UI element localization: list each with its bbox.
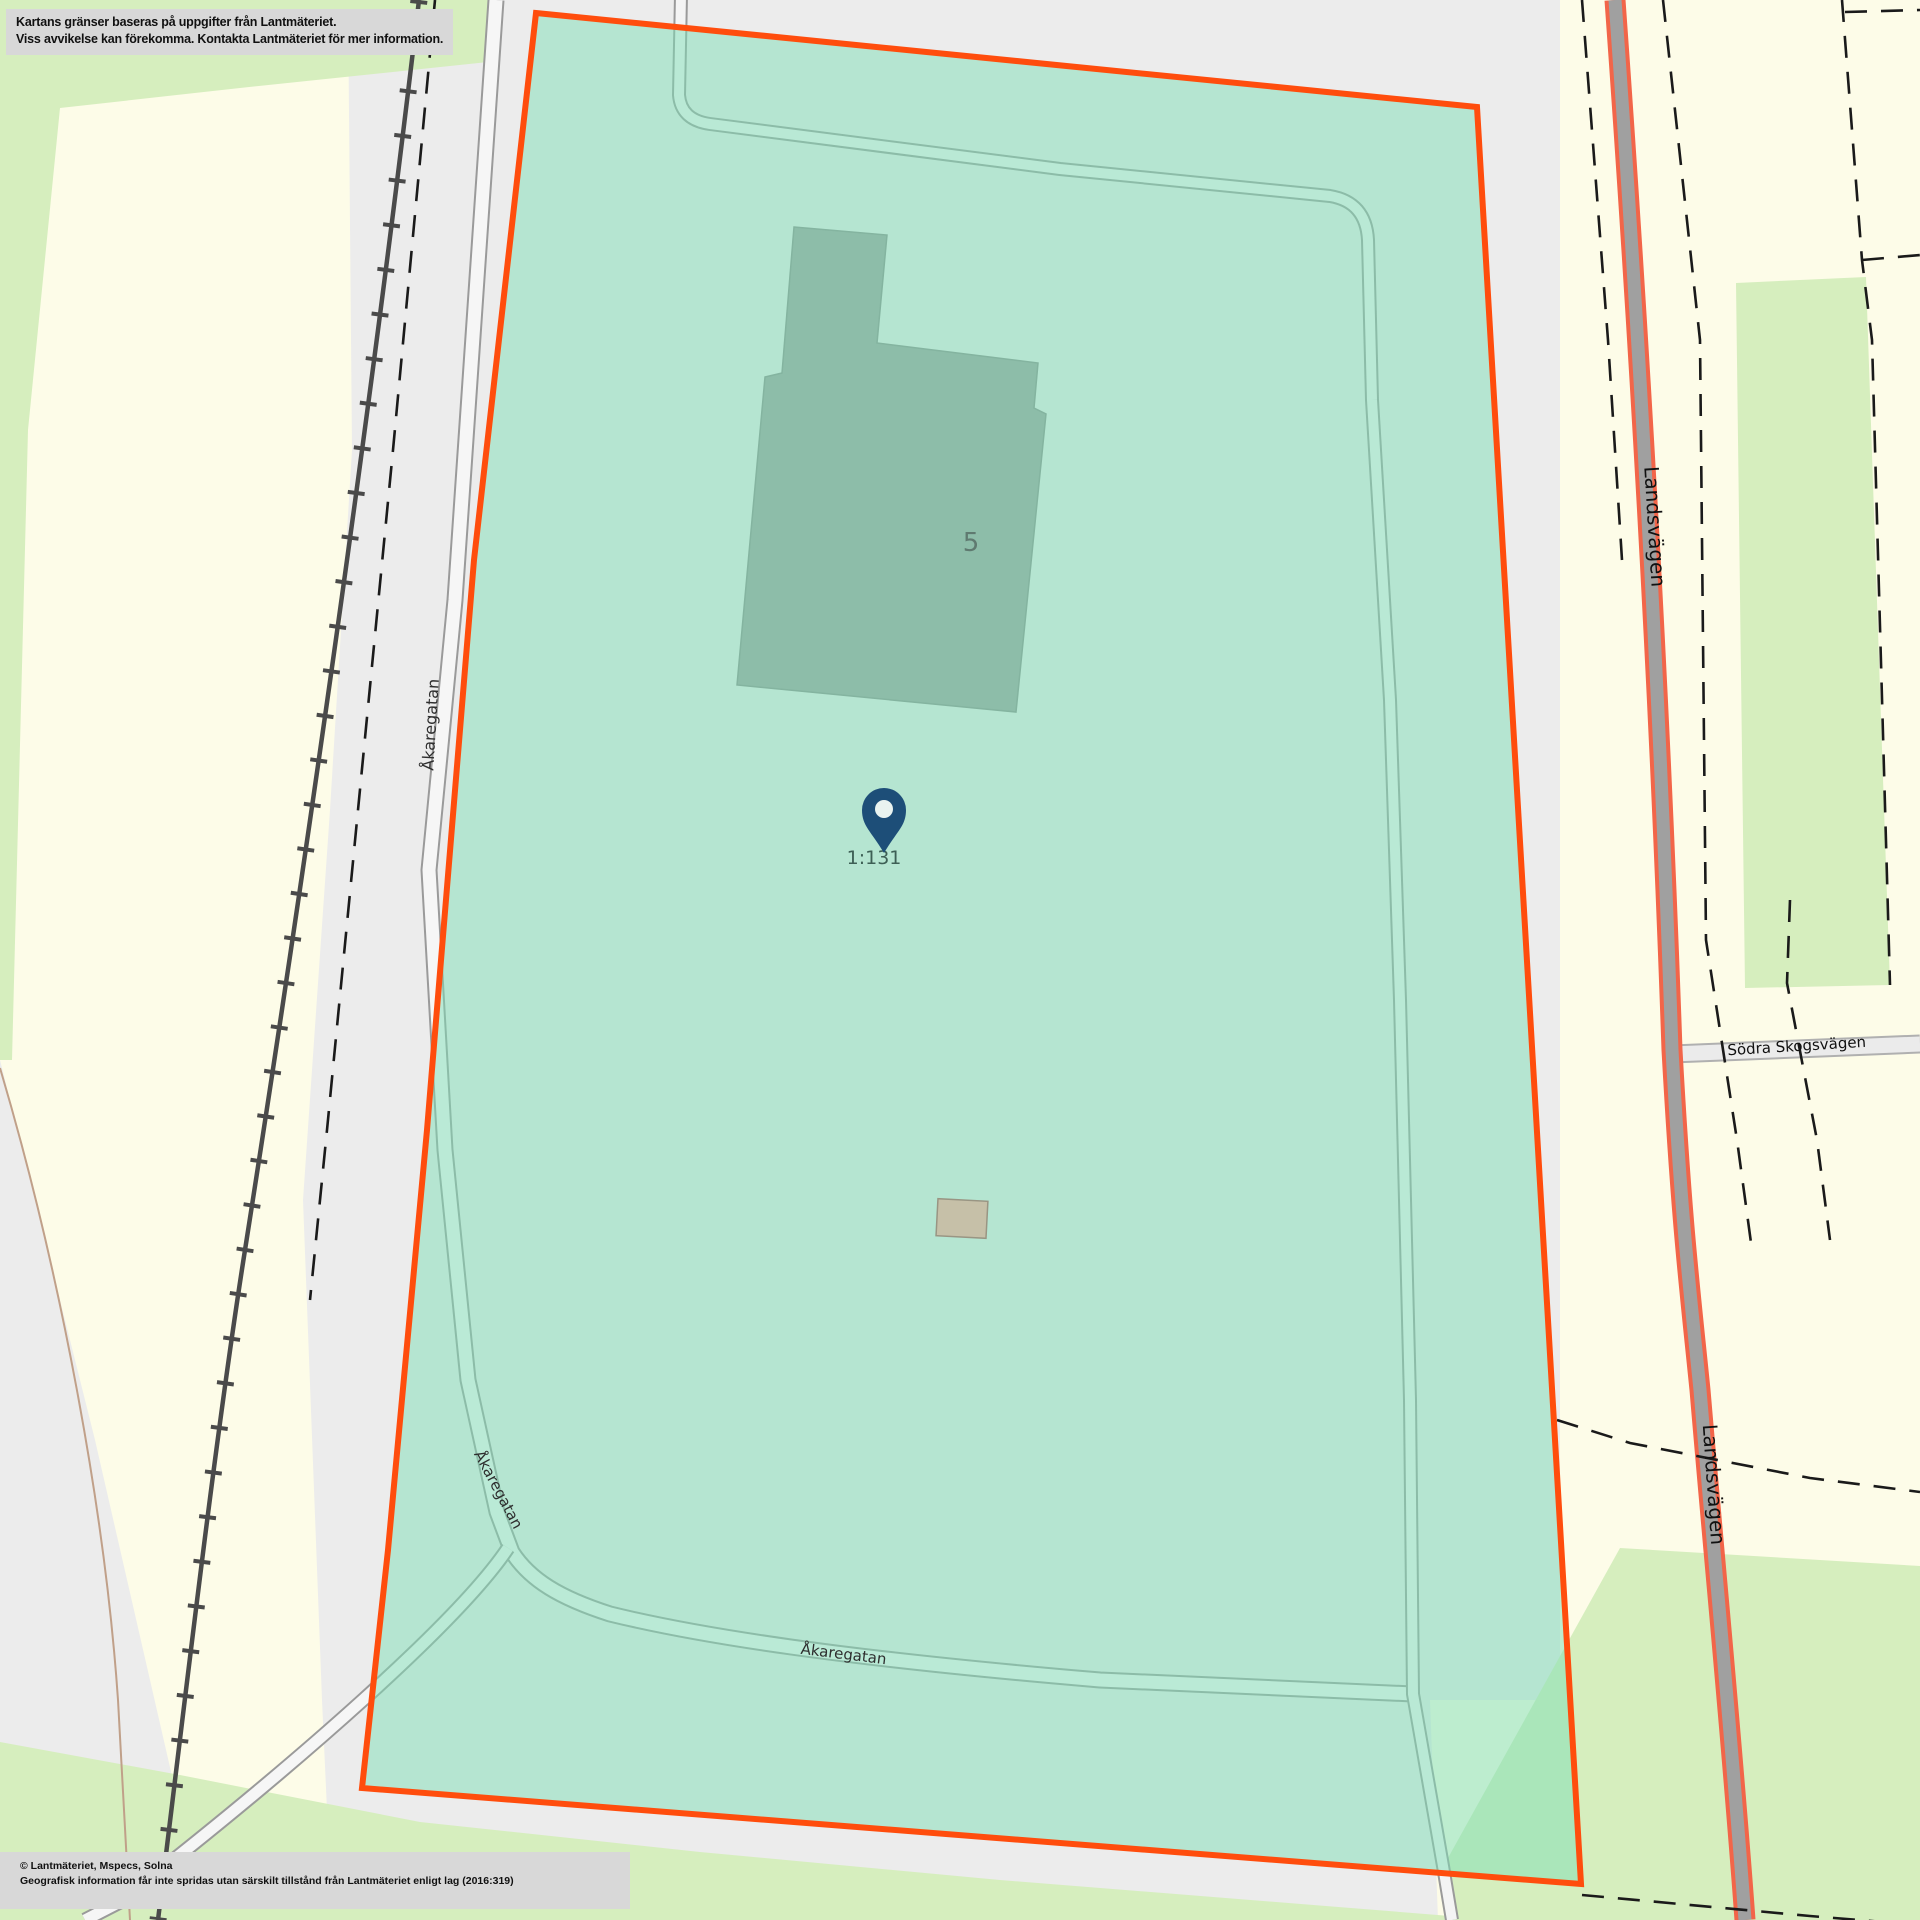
building-number-label: 5 [963, 528, 980, 558]
disclaimer-line1: Kartans gränser baseras på uppgifter frå… [16, 14, 443, 31]
small-building [936, 1199, 988, 1239]
map-svg: 5 1:131 Åkaregatan Åkaregatan Åkaregatan… [0, 0, 1920, 1920]
parcel-id-label: 1:131 [847, 847, 902, 869]
land-area-green-right [1736, 277, 1890, 988]
disclaimer-line2: Viss avvikelse kan förekomma. Kontakta L… [16, 31, 443, 48]
attribution-line2: Geografisk information får inte spridas … [20, 1874, 630, 1889]
attribution-bar: © Lantmäteriet, Mspecs, Solna Geografisk… [0, 1852, 630, 1909]
parcel-highlight[interactable] [362, 13, 1581, 1884]
attribution-line1: © Lantmäteriet, Mspecs, Solna [20, 1859, 630, 1874]
map-canvas[interactable]: 5 1:131 Åkaregatan Åkaregatan Åkaregatan… [0, 0, 1920, 1920]
disclaimer-box: Kartans gränser baseras på uppgifter frå… [6, 9, 453, 55]
